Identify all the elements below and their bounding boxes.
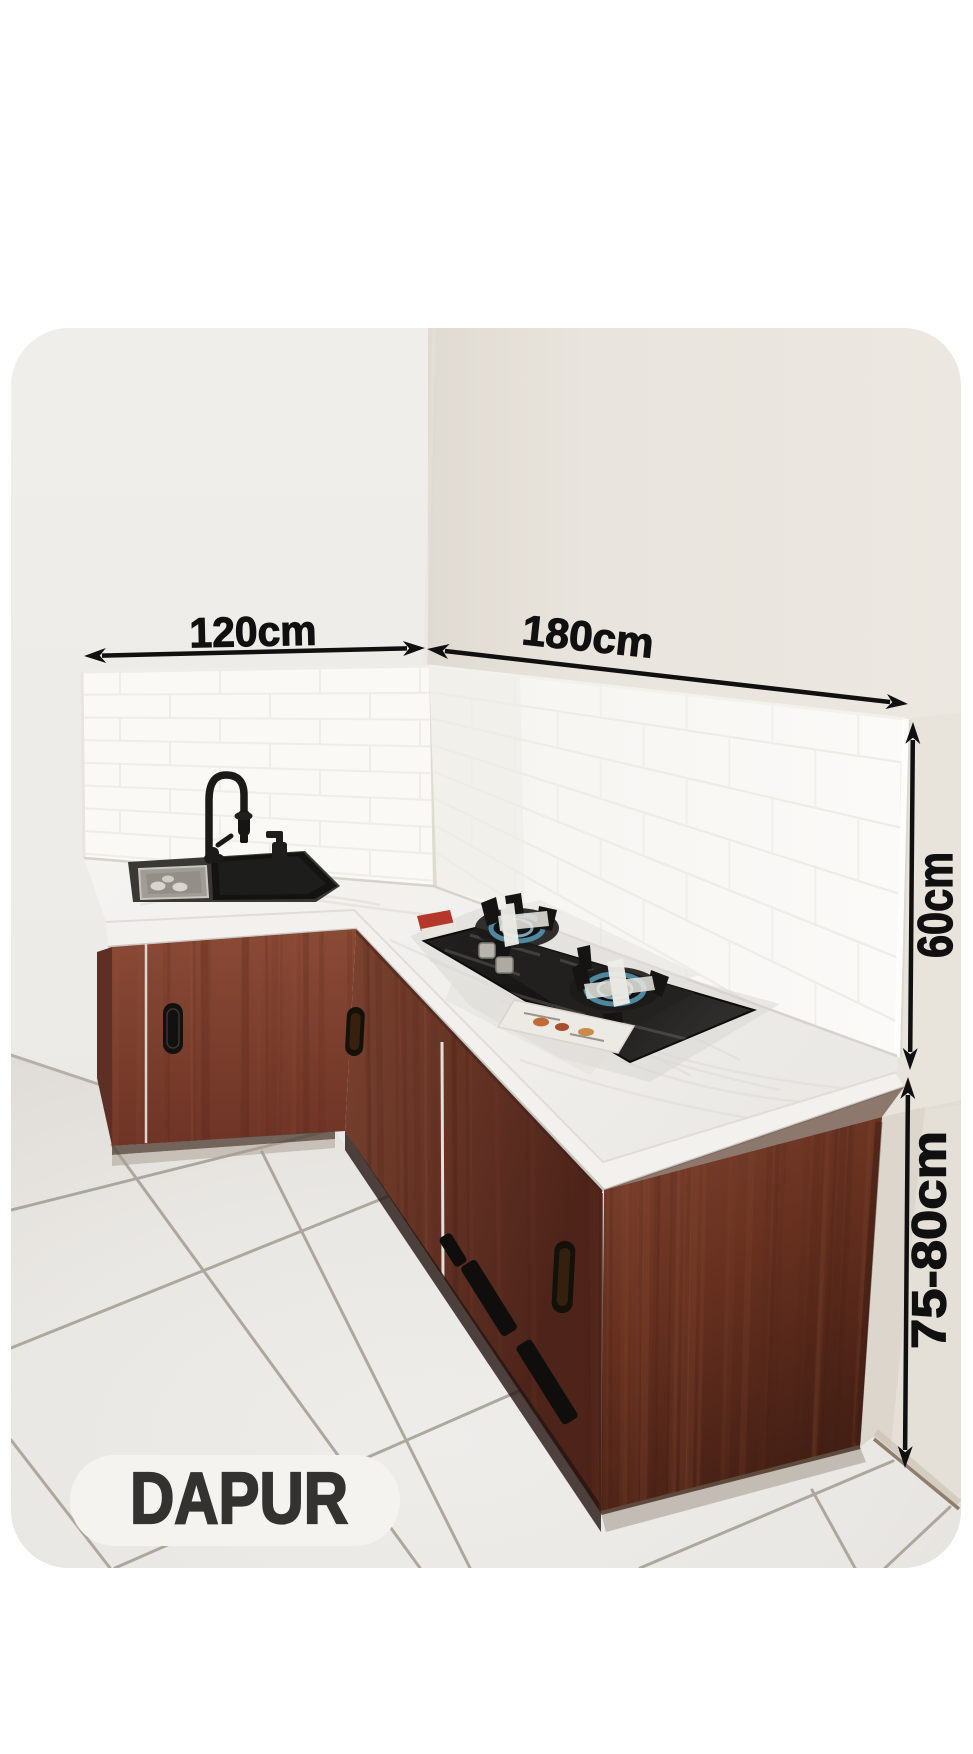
svg-text:DAPUR: DAPUR — [130, 1459, 348, 1539]
svg-text:120cm: 120cm — [189, 607, 317, 657]
svg-text:60cm: 60cm — [909, 852, 963, 958]
svg-text:75-80cm: 75-80cm — [904, 1131, 957, 1349]
